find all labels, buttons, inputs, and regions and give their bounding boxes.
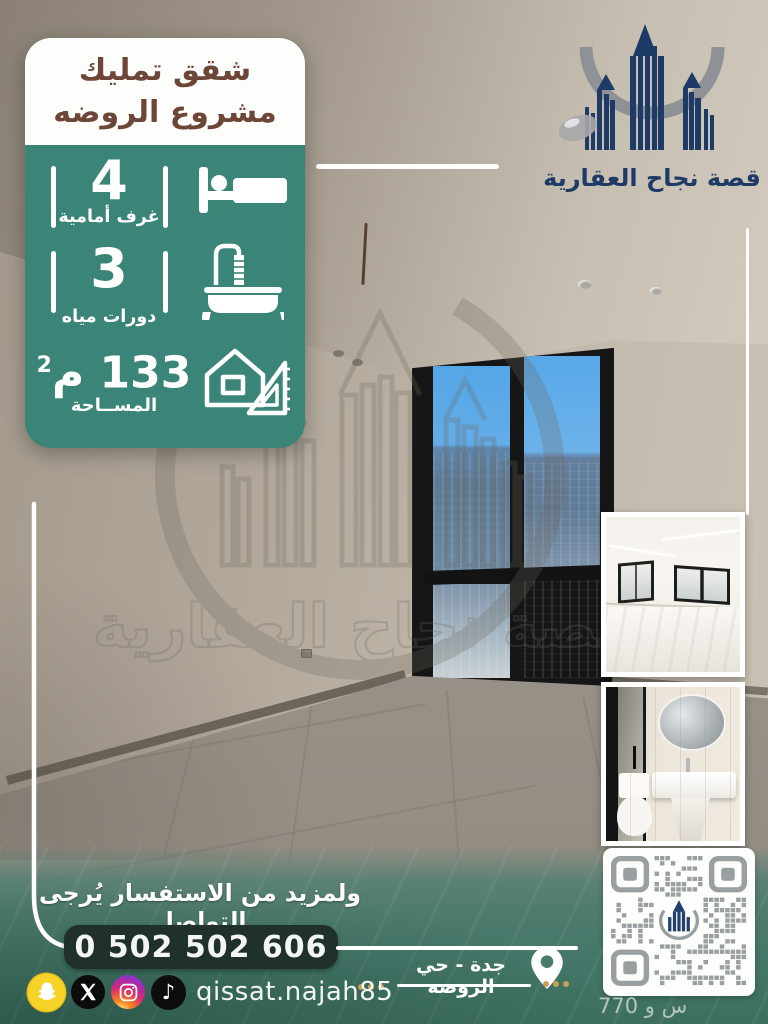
inset-window — [674, 565, 730, 605]
qr-code[interactable] — [603, 848, 755, 996]
bathroom-mirror — [660, 696, 724, 748]
divider-line — [316, 164, 499, 169]
watermark-caption: 770 س و — [598, 994, 768, 1018]
water-droplet — [650, 287, 662, 295]
title-line-2: مشروع الروضه — [25, 92, 305, 134]
baths-label: دورات مياه — [47, 307, 171, 327]
bathtub-icon — [202, 241, 284, 321]
qr-center-logo — [657, 899, 701, 941]
separator-bar — [163, 251, 168, 313]
cove-light — [662, 529, 739, 540]
snapchat-icon[interactable] — [28, 974, 65, 1011]
phone-number-button[interactable]: 0 502 502 606 — [64, 925, 338, 969]
real-estate-flyer: قصة نجاح العقارية ولم — [0, 0, 768, 1024]
gold-dots — [543, 981, 569, 987]
svg-text:قصة نجاح العقارية: قصة نجاح العقارية — [93, 592, 637, 662]
phone-number: 0 502 502 606 — [74, 930, 327, 965]
baths-count: 3 — [55, 241, 163, 297]
bed-icon — [197, 165, 289, 215]
stats-card: 4 غرف أمامية 3 دورات مياه 133 — [25, 145, 305, 448]
title-line-1: شقق تمليك — [25, 50, 305, 92]
x-twitter-icon[interactable] — [71, 975, 105, 1009]
toilet — [619, 773, 648, 798]
brand-logo: قصة نجاح العقارية — [538, 16, 768, 206]
marble-floor — [606, 607, 740, 672]
divider-line — [397, 984, 531, 987]
instagram-icon[interactable] — [111, 975, 145, 1009]
house-area-icon — [197, 339, 291, 425]
divider-line — [746, 228, 749, 515]
area-label: المســاحة — [39, 395, 189, 416]
info-card-stack: شقق تمليك مشروع الروضه 4 غرف أمامية 3 دو… — [25, 38, 305, 448]
location-label: جدة - حي الروضه — [390, 954, 532, 998]
social-username[interactable]: qissat.najah85 — [196, 977, 393, 1007]
title-card: شقق تمليك مشروع الروضه — [25, 38, 305, 145]
cove-light — [609, 544, 675, 556]
inset-window — [618, 560, 654, 603]
social-row: ♪ qissat.najah85 — [28, 972, 393, 1012]
rooms-count: 4 — [55, 153, 163, 209]
inset-photo-living-room — [601, 512, 745, 677]
shower-glass — [606, 687, 646, 841]
bathroom-sink — [652, 772, 736, 798]
area-value: 133 م2 — [33, 341, 195, 399]
brand-name: قصة نجاح العقارية — [543, 164, 761, 192]
tiktok-icon[interactable]: ♪ — [151, 975, 186, 1010]
inset-photo-bathroom — [601, 682, 745, 846]
rooms-label: غرف أمامية — [47, 207, 171, 227]
